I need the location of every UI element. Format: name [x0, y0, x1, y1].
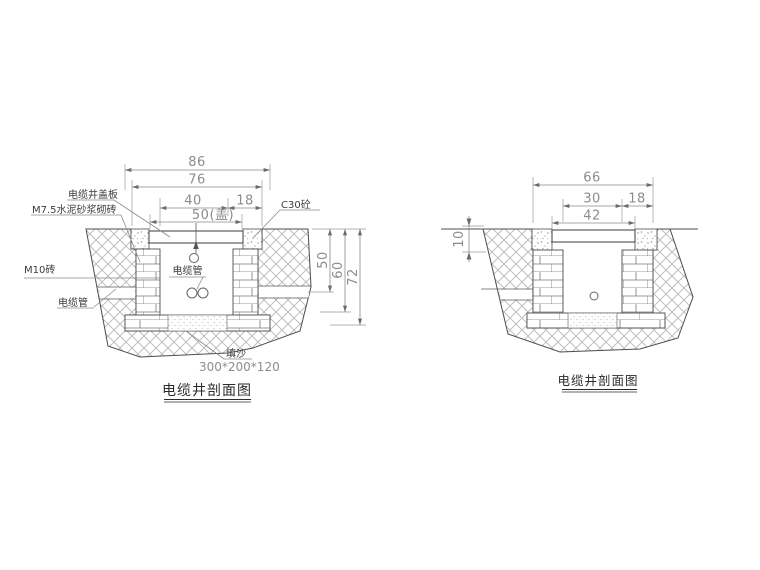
dim-opening-width: 76	[188, 173, 206, 188]
figure-left: 86 76 40 18 50(盖) 50 60 72 电缆井盖板	[24, 155, 366, 402]
figure-title-right: 电缆井剖面图	[557, 373, 638, 392]
cable-pipe-rf	[590, 292, 598, 300]
dim-depth-total: 72	[346, 268, 361, 286]
label-c30-concrete: C30砼	[281, 198, 311, 211]
brick-wall-left-rf	[533, 250, 563, 315]
label-mortar-brick: M7.5水泥砂浆砌砖	[32, 203, 117, 216]
dimensions-horizontal-left-figure: 86 76 40 18 50(盖)	[125, 155, 270, 229]
label-m10-brick: M10砖	[24, 263, 55, 276]
drawing-sheet: 86 76 40 18 50(盖) 50 60 72 电缆井盖板	[0, 0, 760, 570]
concrete-collar-right-rf	[635, 229, 657, 250]
label-cable-duct-center: 电缆管	[173, 264, 203, 277]
duct-opening-right-figure	[481, 289, 533, 300]
dim-cover-width-rf: 42	[583, 209, 601, 224]
dimensions-vertical-left-figure: 50 60 72	[308, 229, 366, 325]
brick-wall-right	[233, 249, 258, 315]
duct-opening-right-wall	[258, 286, 311, 298]
dimensions-horizontal-right-figure: 66 30 18 42	[533, 171, 653, 230]
right-figure-title-text: 电缆井剖面图	[557, 373, 638, 388]
dim-mortar-depth: 10	[452, 230, 467, 248]
dim-depth-inner: 50	[316, 251, 331, 269]
dim-overall-width: 86	[188, 155, 206, 170]
concrete-collar-left-rf	[532, 229, 552, 250]
brick-wall-left	[136, 249, 160, 315]
dim-depth-wall: 60	[331, 261, 346, 279]
label-fill-sand: 填沙	[226, 347, 246, 360]
dim-collar-width-rf: 18	[628, 192, 646, 207]
dim-inner-width-rf: 30	[583, 192, 601, 207]
sand-fill-rf	[568, 313, 617, 328]
label-cable-duct-side: 电缆管	[58, 296, 88, 309]
dim-overall-width-rf: 66	[583, 171, 601, 186]
dim-cover-width: 50(盖)	[192, 208, 234, 223]
left-figure-title-text: 电缆井剖面图	[162, 383, 252, 399]
sand-fill	[168, 315, 227, 331]
well-cover-plate-rf	[552, 230, 635, 242]
dim-inner-width: 40	[184, 194, 202, 209]
figure-right: 66 30 18 42 10 电缆井剖面图	[441, 171, 698, 393]
cable-well-section-drawing: 86 76 40 18 50(盖) 50 60 72 电缆井盖板	[0, 0, 760, 570]
label-sand-size: 300*200*120	[199, 360, 280, 374]
figure-title-left: 电缆井剖面图	[162, 383, 252, 402]
label-cover-plate: 电缆井盖板	[68, 188, 118, 201]
brick-wall-right-rf	[622, 250, 653, 315]
dim-collar-width: 18	[236, 194, 254, 209]
dimension-mortar-depth: 10	[452, 216, 486, 262]
duct-opening-left-wall	[97, 287, 136, 299]
